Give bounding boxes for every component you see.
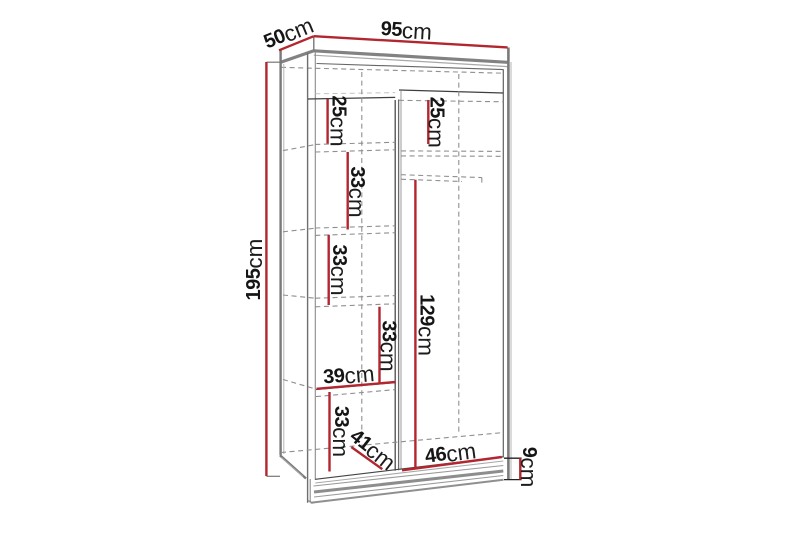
svg-text:33cm: 33cm xyxy=(345,166,370,217)
svg-text:25cm: 25cm xyxy=(424,97,449,148)
svg-text:129cm: 129cm xyxy=(414,294,439,356)
svg-text:195cm: 195cm xyxy=(241,239,266,301)
svg-text:33cm: 33cm xyxy=(327,244,352,295)
svg-text:33cm: 33cm xyxy=(376,320,401,371)
svg-text:9cm: 9cm xyxy=(517,447,542,488)
svg-text:95cm: 95cm xyxy=(380,16,433,44)
svg-text:33cm: 33cm xyxy=(329,406,354,457)
svg-text:25cm: 25cm xyxy=(326,95,351,146)
svg-text:39cm: 39cm xyxy=(322,361,375,390)
